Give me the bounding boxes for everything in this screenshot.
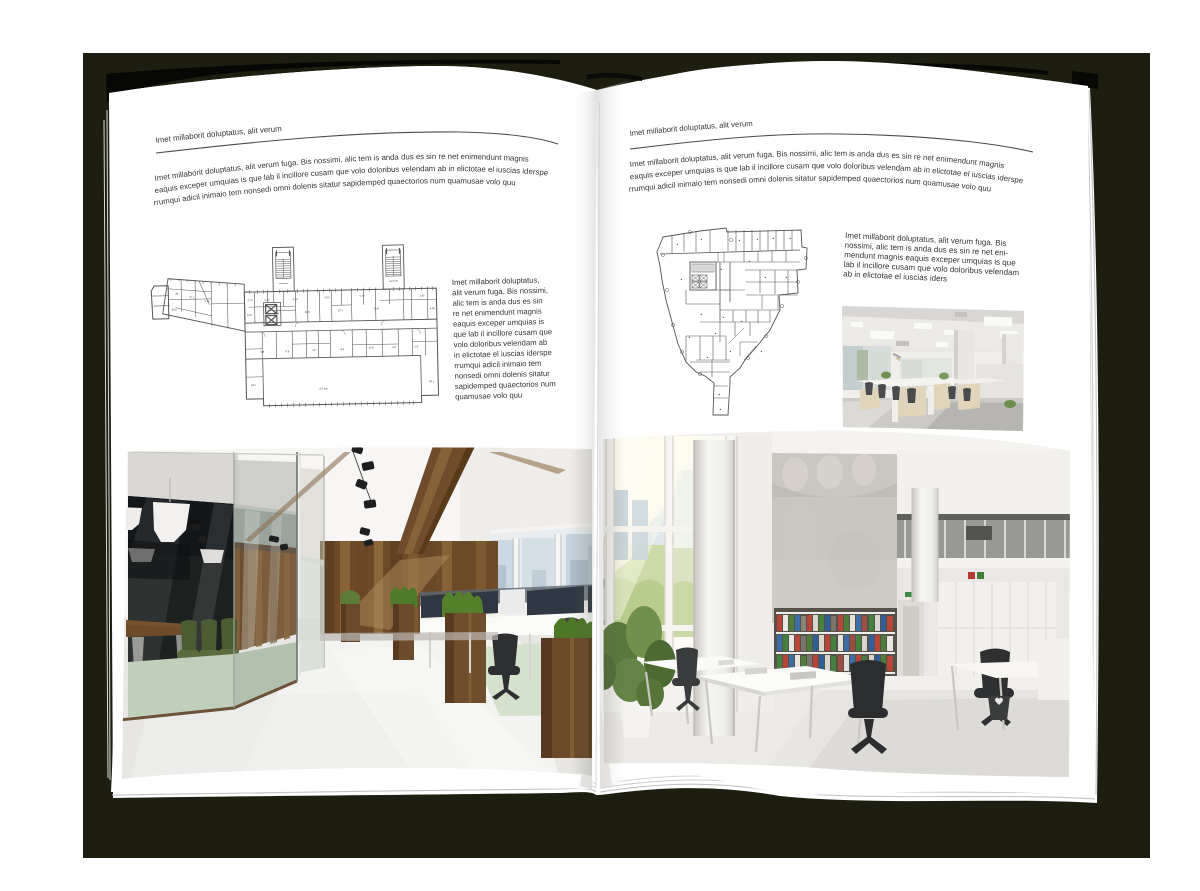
svg-text:13.8: 13.8 <box>247 313 253 317</box>
svg-text:4.6: 4.6 <box>392 345 396 349</box>
svg-text:37.1: 37.1 <box>189 295 195 299</box>
svg-text:▲: ▲ <box>764 276 767 279</box>
svg-text:30.6: 30.6 <box>172 308 178 312</box>
svg-text:2.75: 2.75 <box>247 298 253 302</box>
svg-text:11.8: 11.8 <box>305 310 310 314</box>
svg-text:quamusae volo quu: quamusae volo quu <box>455 390 522 401</box>
svg-text:10.6: 10.6 <box>368 345 374 349</box>
svg-text:▲: ▲ <box>756 238 759 241</box>
svg-text:4.08: 4.08 <box>430 306 436 310</box>
svg-text:▲: ▲ <box>760 350 763 353</box>
svg-text:11.7: 11.7 <box>312 348 317 352</box>
svg-text:▲: ▲ <box>676 243 679 246</box>
svg-text:2-й зал: 2-й зал <box>319 386 328 390</box>
svg-text:3.09: 3.09 <box>324 295 330 299</box>
svg-text:1.45: 1.45 <box>419 293 425 297</box>
svg-text:2.45: 2.45 <box>264 298 270 302</box>
svg-text:5.79: 5.79 <box>359 294 365 298</box>
svg-text:24.8: 24.8 <box>374 306 380 310</box>
svg-text:10.8: 10.8 <box>274 311 280 315</box>
svg-text:▲: ▲ <box>700 238 703 241</box>
svg-text:5.8: 5.8 <box>414 345 418 349</box>
svg-text:12.5: 12.5 <box>338 308 344 312</box>
svg-text:▲: ▲ <box>729 350 732 353</box>
svg-text:30.1: 30.1 <box>429 379 435 383</box>
svg-text:▲: ▲ <box>719 408 722 411</box>
svg-text:9.8: 9.8 <box>261 350 265 354</box>
svg-text:▲: ▲ <box>680 278 683 281</box>
svg-text:▲: ▲ <box>772 237 775 240</box>
svg-text:▲: ▲ <box>722 316 725 319</box>
svg-text:24.7: 24.7 <box>251 383 257 387</box>
svg-text:▲: ▲ <box>706 356 709 359</box>
svg-text:▲: ▲ <box>700 313 703 316</box>
svg-text:▲: ▲ <box>740 320 743 323</box>
svg-text:8.4: 8.4 <box>340 347 344 351</box>
svg-text:▲: ▲ <box>738 239 741 242</box>
svg-text:▲: ▲ <box>789 237 792 240</box>
svg-text:▲: ▲ <box>785 276 788 279</box>
svg-text:5.11: 5.11 <box>204 299 209 303</box>
svg-text:▲: ▲ <box>718 393 721 396</box>
svg-text:▲: ▲ <box>720 268 723 271</box>
svg-text:▲: ▲ <box>688 336 691 339</box>
svg-text:▲: ▲ <box>748 260 751 263</box>
svg-text:2.10: 2.10 <box>292 297 298 301</box>
svg-text:▲: ▲ <box>714 332 717 335</box>
svg-text:6.8: 6.8 <box>286 349 290 353</box>
